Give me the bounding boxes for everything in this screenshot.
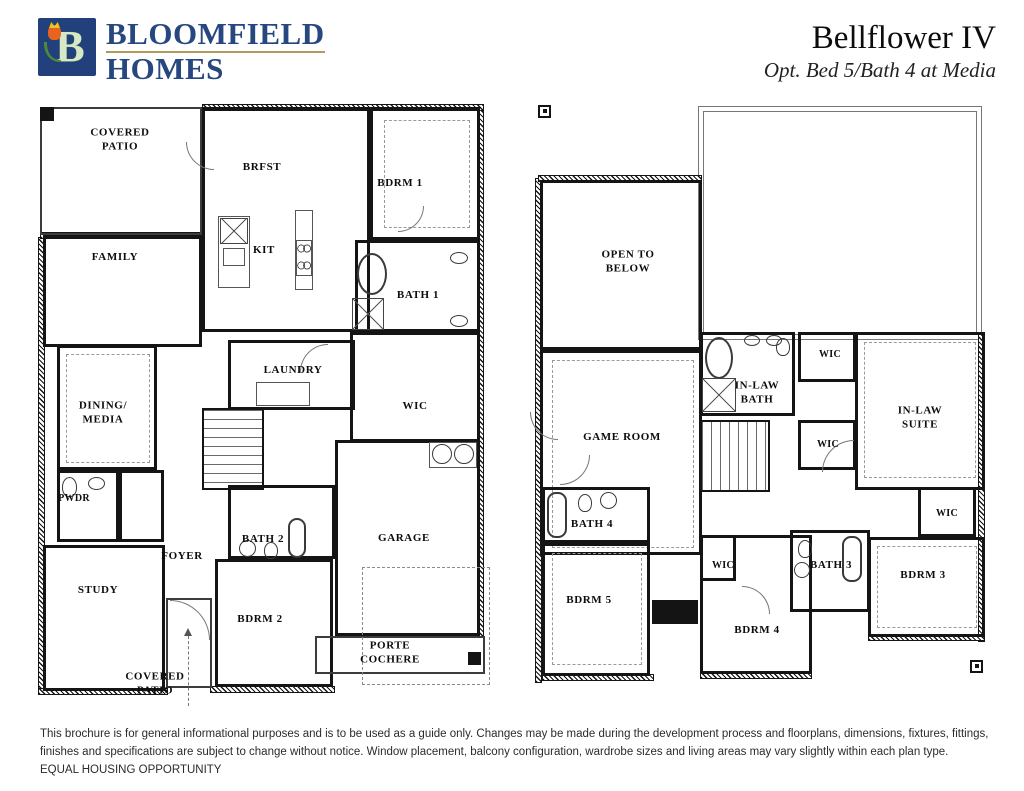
room-label: BATH 4 xyxy=(571,518,613,532)
toilet-bath4 xyxy=(578,494,592,512)
plan-marker xyxy=(970,660,983,673)
room-label: IN-LAW SUITE xyxy=(898,404,943,432)
room-wic-bdrm4 xyxy=(700,535,736,581)
wall-segment xyxy=(652,600,698,624)
room-label: BATH 3 xyxy=(810,559,852,573)
room-label: GAME ROOM xyxy=(583,431,661,445)
staircase xyxy=(700,420,770,492)
toilet-inlaw xyxy=(776,338,790,356)
room-label: OPEN TO BELOW xyxy=(601,248,654,276)
shower-inlaw xyxy=(702,378,736,412)
toilet-bath3 xyxy=(798,540,812,558)
sink-inlaw xyxy=(744,335,760,346)
sink-bath4 xyxy=(600,492,617,509)
room-label: BDRM 4 xyxy=(734,624,779,638)
brochure-page: B BLOOMFIELD HOMES Bellflower IV Opt. Be… xyxy=(0,0,1024,791)
disclaimer-text: This brochure is for general information… xyxy=(40,726,990,779)
room-label: WIC xyxy=(712,560,734,573)
room-label: BDRM 5 xyxy=(566,594,611,608)
ceiling-tray-line xyxy=(552,553,642,665)
ceiling-tray-line xyxy=(877,546,977,628)
room-label: BDRM 3 xyxy=(900,569,945,583)
roof-outline-inner xyxy=(703,111,977,335)
bathtub-inlaw xyxy=(705,337,733,379)
room-label: WIC xyxy=(819,349,841,362)
room-label: WIC xyxy=(936,508,958,521)
room-label: IN-LAW BATH xyxy=(735,379,780,407)
plan-marker xyxy=(538,105,551,118)
bathtub-bath4 xyxy=(547,492,567,538)
room-label: WIC xyxy=(817,439,839,452)
sink-bath3 xyxy=(794,562,810,578)
second-floor-plan: OPEN TO BELOW WIC IN-LAW BATH GAME ROOM … xyxy=(0,0,1024,791)
